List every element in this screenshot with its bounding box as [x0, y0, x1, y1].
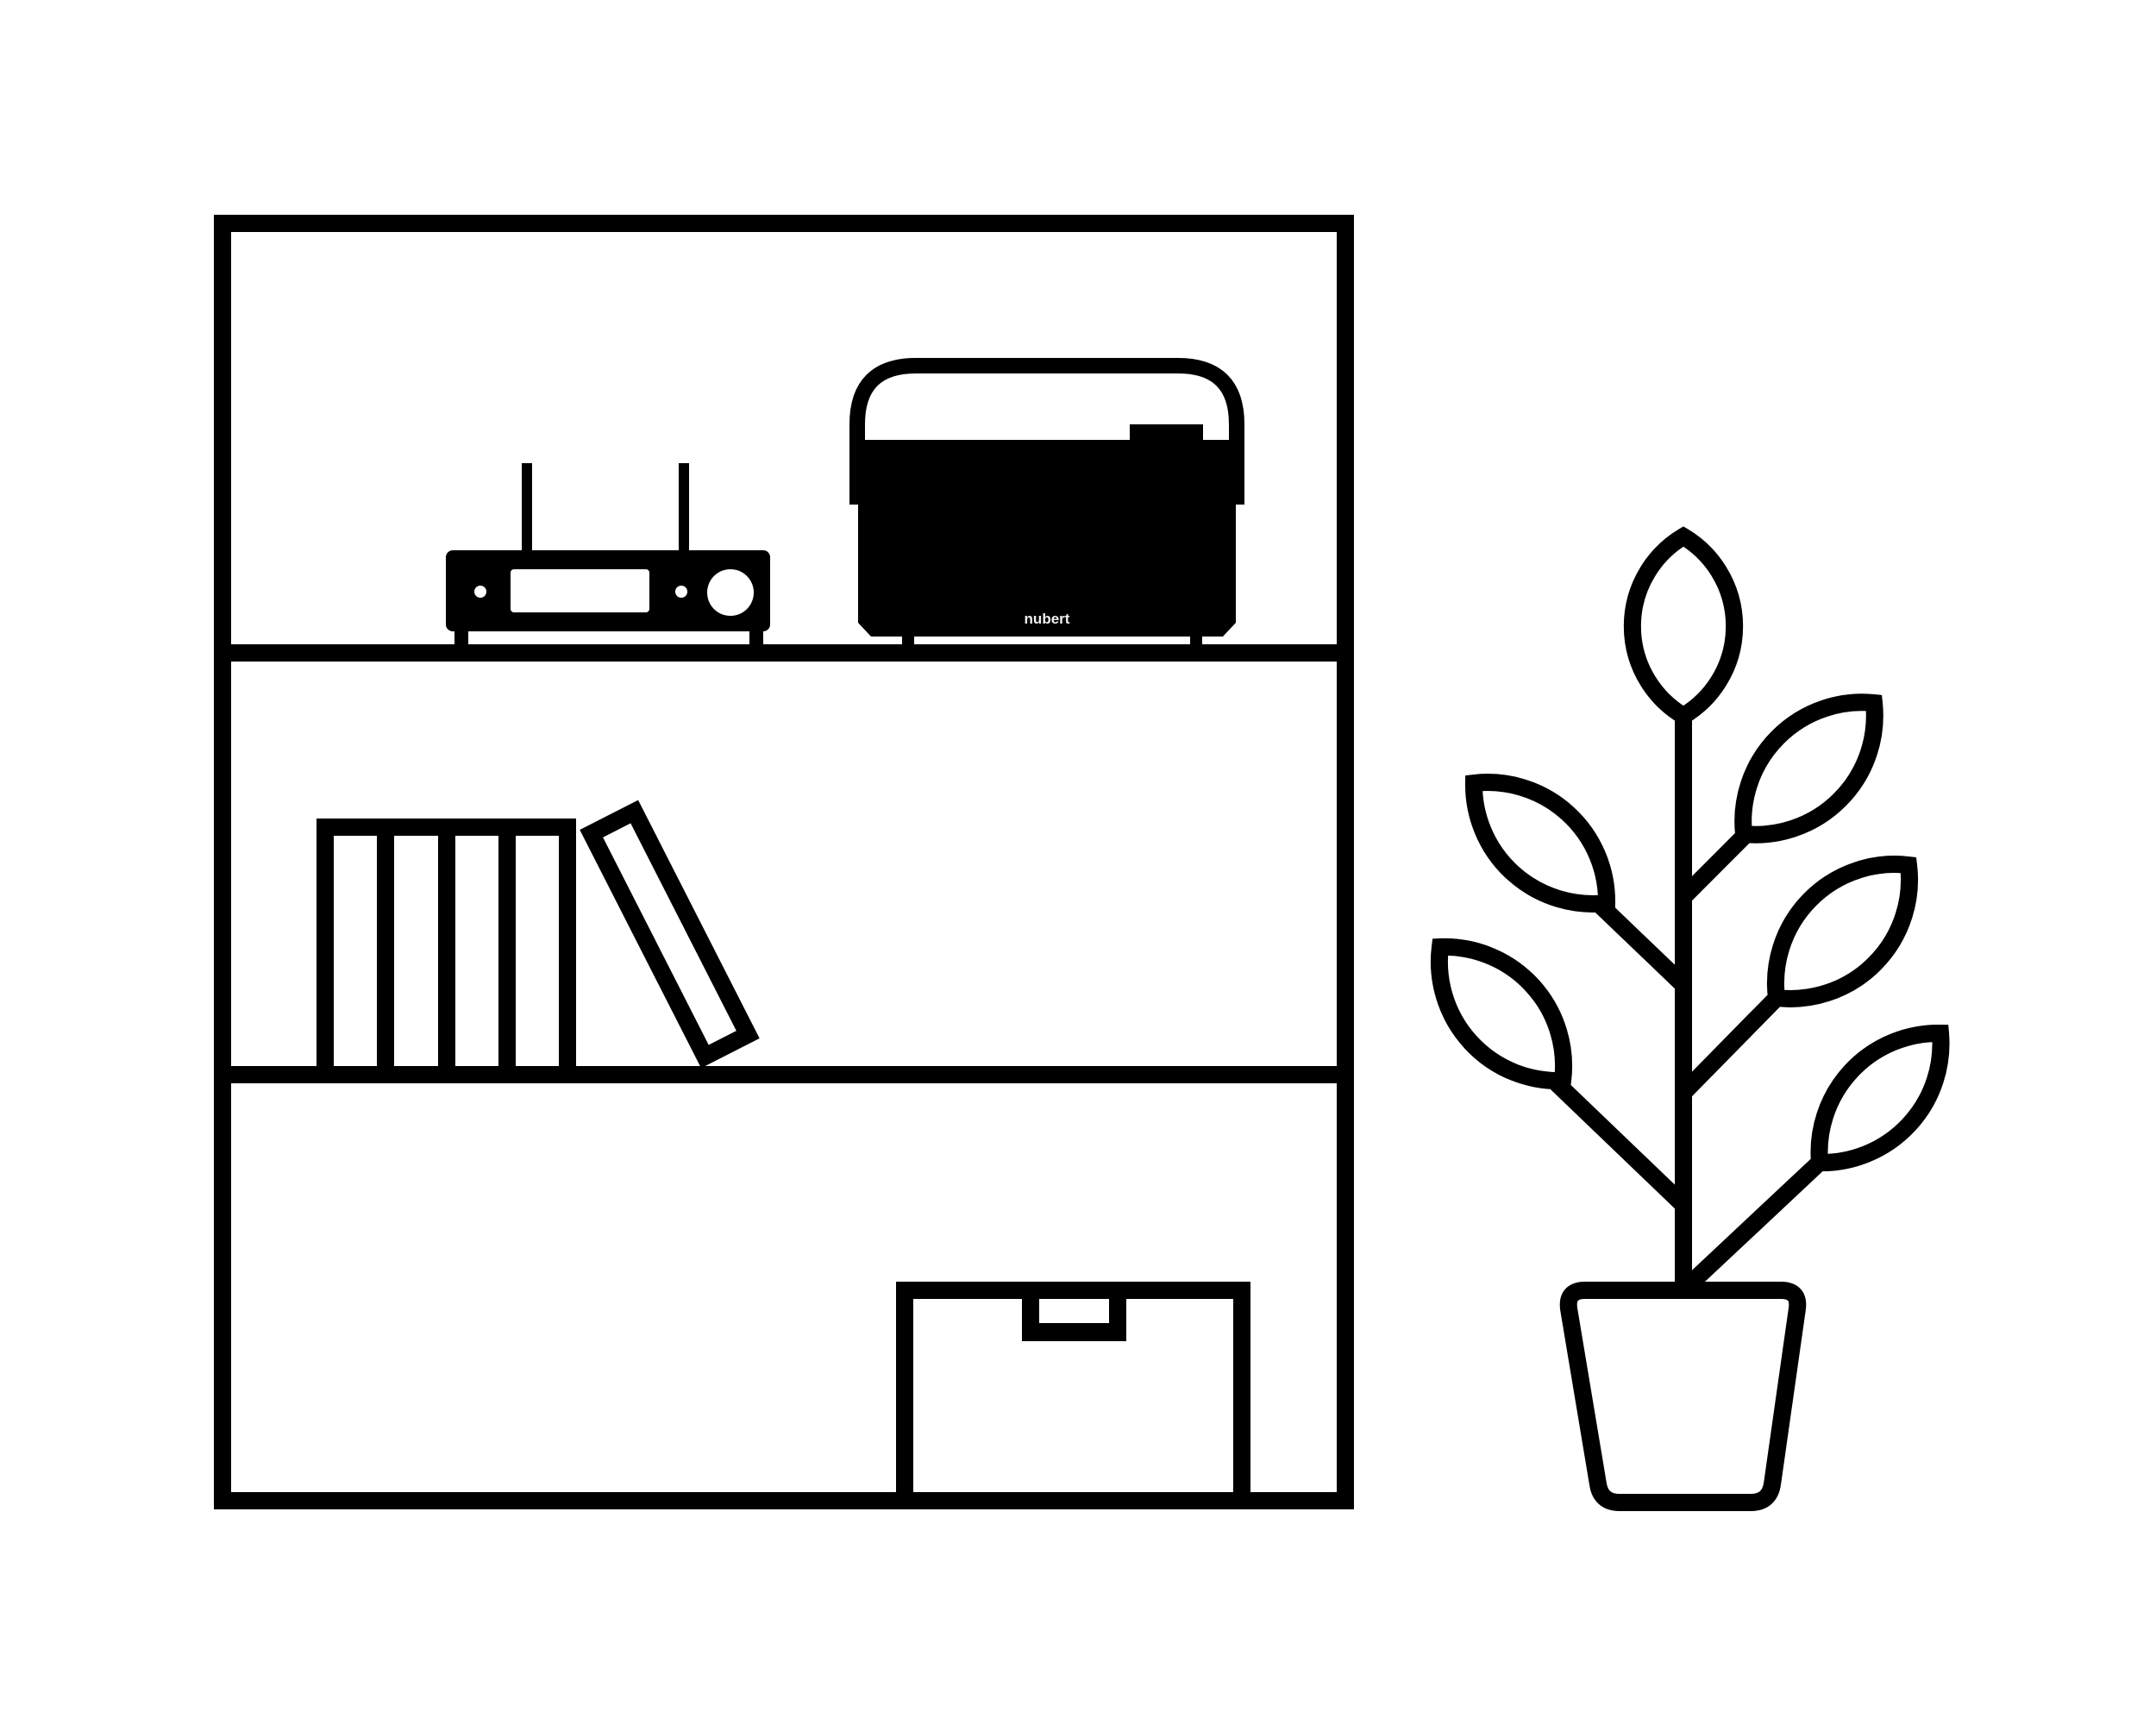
- speaker: nubert: [857, 366, 1237, 644]
- storage-box: [905, 1282, 1242, 1501]
- book-spine-divider: [317, 819, 334, 1066]
- shelf-divider-lower: [231, 1066, 1337, 1083]
- shelf-divider-upper: [231, 644, 1337, 662]
- plant-branch: [1601, 906, 1683, 985]
- speaker-body: [858, 440, 1236, 637]
- receiver-antenna-left-icon: [522, 463, 532, 554]
- leaf-right-lower: [1819, 1033, 1940, 1163]
- leaning-book: [592, 812, 749, 1057]
- book-row: [317, 819, 576, 1066]
- receiver-display: [511, 569, 649, 612]
- book-spine-divider: [559, 819, 576, 1066]
- plant-branch: [1557, 1083, 1683, 1205]
- leaf-right-middle: [1776, 864, 1909, 999]
- stereo-receiver: [446, 463, 770, 644]
- plant-pot: [1569, 1290, 1798, 1502]
- bookshelf: nubert: [222, 223, 1345, 1501]
- receiver-antenna-right-icon: [679, 463, 689, 554]
- receiver-select-dot: [675, 586, 687, 598]
- leaf-left-upper: [1474, 782, 1607, 904]
- illustration-canvas: nubert: [0, 0, 2156, 1725]
- receiver-power-led: [474, 586, 486, 598]
- leaf-right-upper: [1743, 702, 1875, 834]
- storage-box-handle-slot: [1039, 1299, 1109, 1323]
- book-spine-divider: [438, 819, 455, 1066]
- receiver-volume-knob: [707, 569, 754, 616]
- speaker-top-button: [1130, 424, 1203, 440]
- book-spine-divider: [498, 819, 516, 1066]
- plant-branch: [1683, 993, 1782, 1093]
- plant-branch: [1687, 1157, 1825, 1287]
- potted-plant: [1439, 536, 1941, 1502]
- book-spine-divider: [377, 819, 394, 1066]
- leaf-left-lower: [1439, 947, 1564, 1081]
- leaf-top: [1633, 536, 1734, 716]
- speaker-brand-label: nubert: [1025, 611, 1070, 627]
- leaning-book-cover: [592, 812, 749, 1057]
